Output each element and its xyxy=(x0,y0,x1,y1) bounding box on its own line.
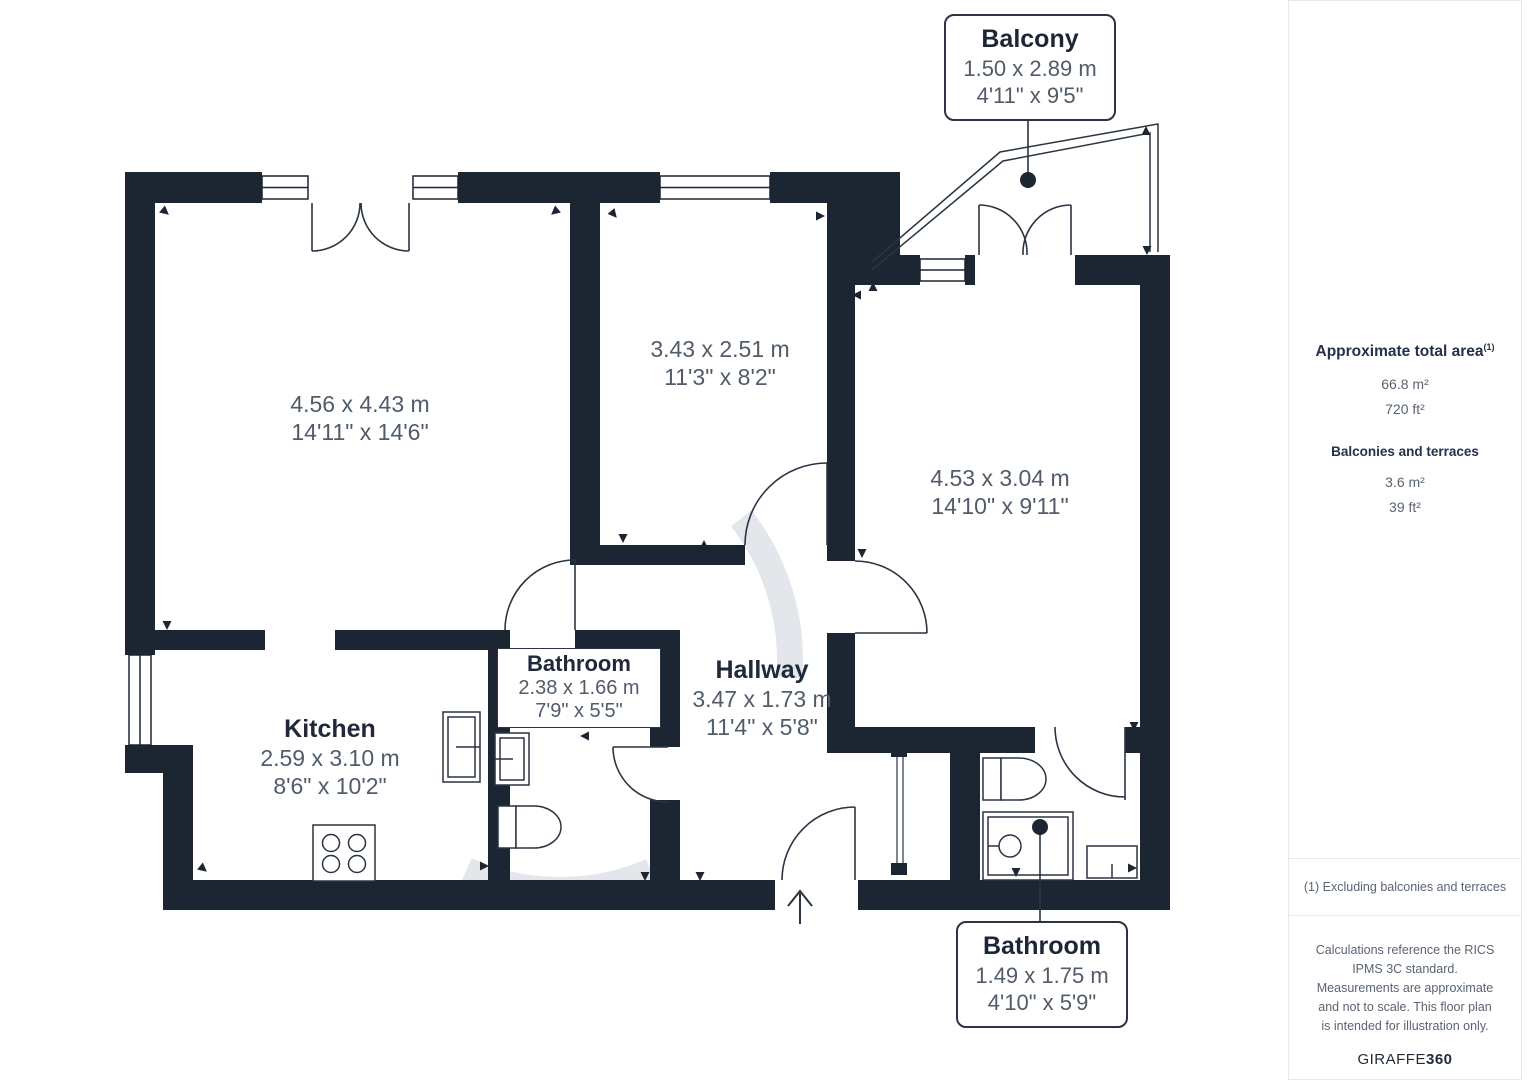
callout-dim-imperial: 4'10" x 5'9" xyxy=(972,989,1112,1016)
room-name: Bathroom xyxy=(504,651,654,677)
stove xyxy=(313,825,375,881)
info-sidebar: Approximate total area(1) 66.8 m² 720 ft… xyxy=(1288,0,1522,1080)
room-label-living-room: 4.56 x 4.43 m 14'11" x 14'6" xyxy=(290,390,429,446)
room-label-kitchen: Kitchen 2.59 x 3.10 m 8'6" x 10'2" xyxy=(260,714,399,800)
entrance-door xyxy=(782,807,855,880)
entrance-arrow xyxy=(788,891,812,924)
room-dim-metric: 2.38 x 1.66 m xyxy=(504,677,654,700)
total-area-ft2: 720 ft² xyxy=(1289,401,1521,417)
bathroom-sink xyxy=(1087,846,1137,878)
callout-title: Bathroom xyxy=(972,931,1112,962)
window xyxy=(920,259,965,281)
room-label-bathroom: Bathroom 2.38 x 1.66 m 7'9" x 5'5" xyxy=(497,648,661,728)
bathroom-sink xyxy=(495,733,529,785)
room-dim-metric: 4.53 x 3.04 m xyxy=(930,464,1069,492)
total-area-label: Approximate total area xyxy=(1316,343,1484,360)
door xyxy=(505,560,575,630)
room-dim-imperial: 8'6" x 10'2" xyxy=(260,772,399,800)
room-name: Kitchen xyxy=(260,714,399,744)
area-summary: Approximate total area(1) 66.8 m² 720 ft… xyxy=(1289,342,1521,515)
callout-dim-metric: 1.49 x 1.75 m xyxy=(972,962,1112,989)
room-dim-metric: 2.59 x 3.10 m xyxy=(260,744,399,772)
footnote-text: (1) Excluding balconies and terraces xyxy=(1304,880,1506,894)
window xyxy=(413,176,458,199)
room-label-bedroom: 4.53 x 3.04 m 14'10" x 9'11" xyxy=(930,464,1069,520)
total-area-title: Approximate total area(1) xyxy=(1289,342,1521,361)
window xyxy=(660,176,770,199)
room-dim-imperial: 11'4" x 5'8" xyxy=(692,713,831,741)
floorplan-canvas: 4.56 x 4.43 m 14'11" x 14'6" 3.43 x 2.51… xyxy=(0,0,1288,1080)
total-area-footnote-marker: (1) xyxy=(1483,342,1494,352)
room-dim-metric: 4.56 x 4.43 m xyxy=(290,390,429,418)
callout-title: Balcony xyxy=(960,24,1100,55)
door xyxy=(613,747,668,802)
room-dim-metric: 3.47 x 1.73 m xyxy=(692,685,831,713)
room-dim-imperial: 14'10" x 9'11" xyxy=(930,492,1069,520)
sliding-door xyxy=(897,757,903,863)
toilet xyxy=(983,758,1046,800)
window xyxy=(262,176,308,199)
room-dim-imperial: 7'9" x 5'5" xyxy=(504,700,654,723)
room-dim-imperial: 11'3" x 8'2" xyxy=(650,363,789,391)
balconies-title: Balconies and terraces xyxy=(1289,444,1521,459)
brand-suffix: 360 xyxy=(1426,1051,1453,1068)
shower xyxy=(983,812,1073,880)
balconies-ft2: 39 ft² xyxy=(1289,499,1521,515)
balconies-m2: 3.6 m² xyxy=(1289,474,1521,490)
callout-bathroom: Bathroom 1.49 x 1.75 m 4'10" x 5'9" xyxy=(956,921,1128,1028)
door xyxy=(855,561,927,633)
kitchen-sink xyxy=(443,712,480,782)
callout-dim-imperial: 4'11" x 9'5" xyxy=(960,82,1100,109)
window xyxy=(129,655,151,745)
door xyxy=(1055,727,1125,800)
disclaimer-box: Calculations reference the RICS IPMS 3C … xyxy=(1289,915,1521,1079)
toilet xyxy=(498,806,561,848)
floorplan-page: 4.56 x 4.43 m 14'11" x 14'6" 3.43 x 2.51… xyxy=(0,0,1527,1080)
callout-dim-metric: 1.50 x 2.89 m xyxy=(960,55,1100,82)
balcony-door xyxy=(979,205,1071,255)
balcony-railing xyxy=(872,124,1158,270)
room-label-hallway: Hallway 3.47 x 1.73 m 11'4" x 5'8" xyxy=(692,655,831,741)
footnote-box: (1) Excluding balconies and terraces xyxy=(1288,858,1522,916)
room-label-bedroom-2: 3.43 x 2.51 m 11'3" x 8'2" xyxy=(650,335,789,391)
brand-prefix: GIRAFFE xyxy=(1357,1051,1426,1068)
french-door xyxy=(312,203,409,251)
room-dim-metric: 3.43 x 2.51 m xyxy=(650,335,789,363)
room-dim-imperial: 14'11" x 14'6" xyxy=(290,418,429,446)
total-area-m2: 66.8 m² xyxy=(1289,376,1521,392)
room-name: Hallway xyxy=(692,655,831,685)
disclaimer-text: Calculations reference the RICS IPMS 3C … xyxy=(1313,941,1497,1036)
floorplan-svg xyxy=(0,0,1288,1080)
callout-balcony: Balcony 1.50 x 2.89 m 4'11" x 9'5" xyxy=(944,14,1116,121)
giraffe360-logo: GIRAFFE360 xyxy=(1289,1051,1521,1068)
